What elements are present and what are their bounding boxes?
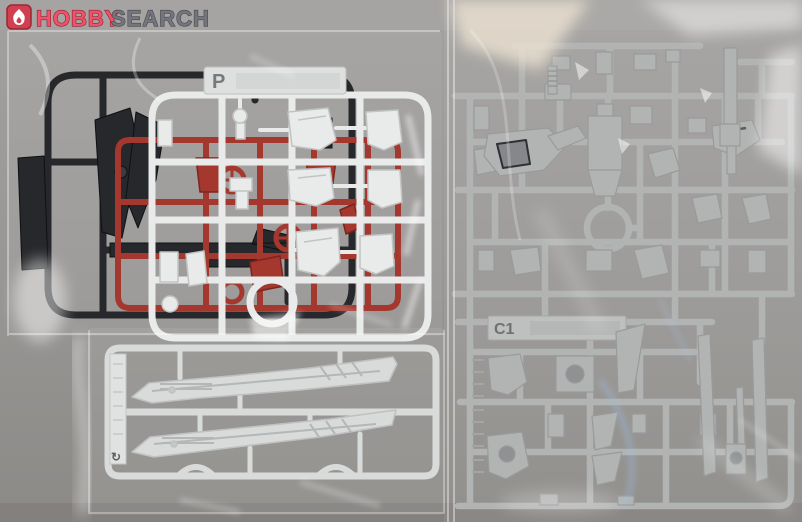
blade-pivot: [171, 441, 177, 447]
tag-label-p: P: [212, 71, 225, 93]
armor-panel-part: [366, 110, 402, 150]
embossed-text-strip: [236, 73, 340, 89]
white-runner-tag: P: [204, 67, 346, 94]
joint-hole: [730, 452, 742, 464]
gray-runner-tag: C1: [488, 316, 626, 340]
armor-panel-part: [288, 108, 336, 150]
blade-runner-tag-bar: ↻: [110, 354, 126, 464]
armor-panel-part: [360, 234, 394, 274]
white-hook-stem: [236, 123, 245, 139]
white-small-part: [162, 296, 178, 312]
logo-text-hobby: HOBBY: [36, 6, 120, 31]
sprue-tag-plate: [110, 354, 126, 464]
torso-part: [588, 104, 622, 196]
recycle-icon: ↻: [111, 450, 121, 464]
joint-hole: [566, 365, 584, 383]
embossed-text-strip: [530, 321, 620, 335]
visor-window: [497, 140, 530, 168]
white-hook-part: [233, 109, 247, 123]
product-photo: P: [0, 0, 802, 522]
black-side-bar-part: [18, 156, 48, 270]
armor-panel-part: [288, 168, 334, 206]
armor-panel-part: [368, 170, 402, 208]
joint-hole: [499, 446, 515, 462]
tag-label-c1: C1: [494, 321, 515, 338]
photo-canvas: P: [0, 0, 802, 522]
blade-pivot: [169, 387, 175, 393]
hobby-search-watermark: HOBBY SEARCH: [7, 5, 210, 31]
logo-text-search: SEARCH: [111, 6, 210, 31]
coil-spring-part: [548, 66, 557, 94]
